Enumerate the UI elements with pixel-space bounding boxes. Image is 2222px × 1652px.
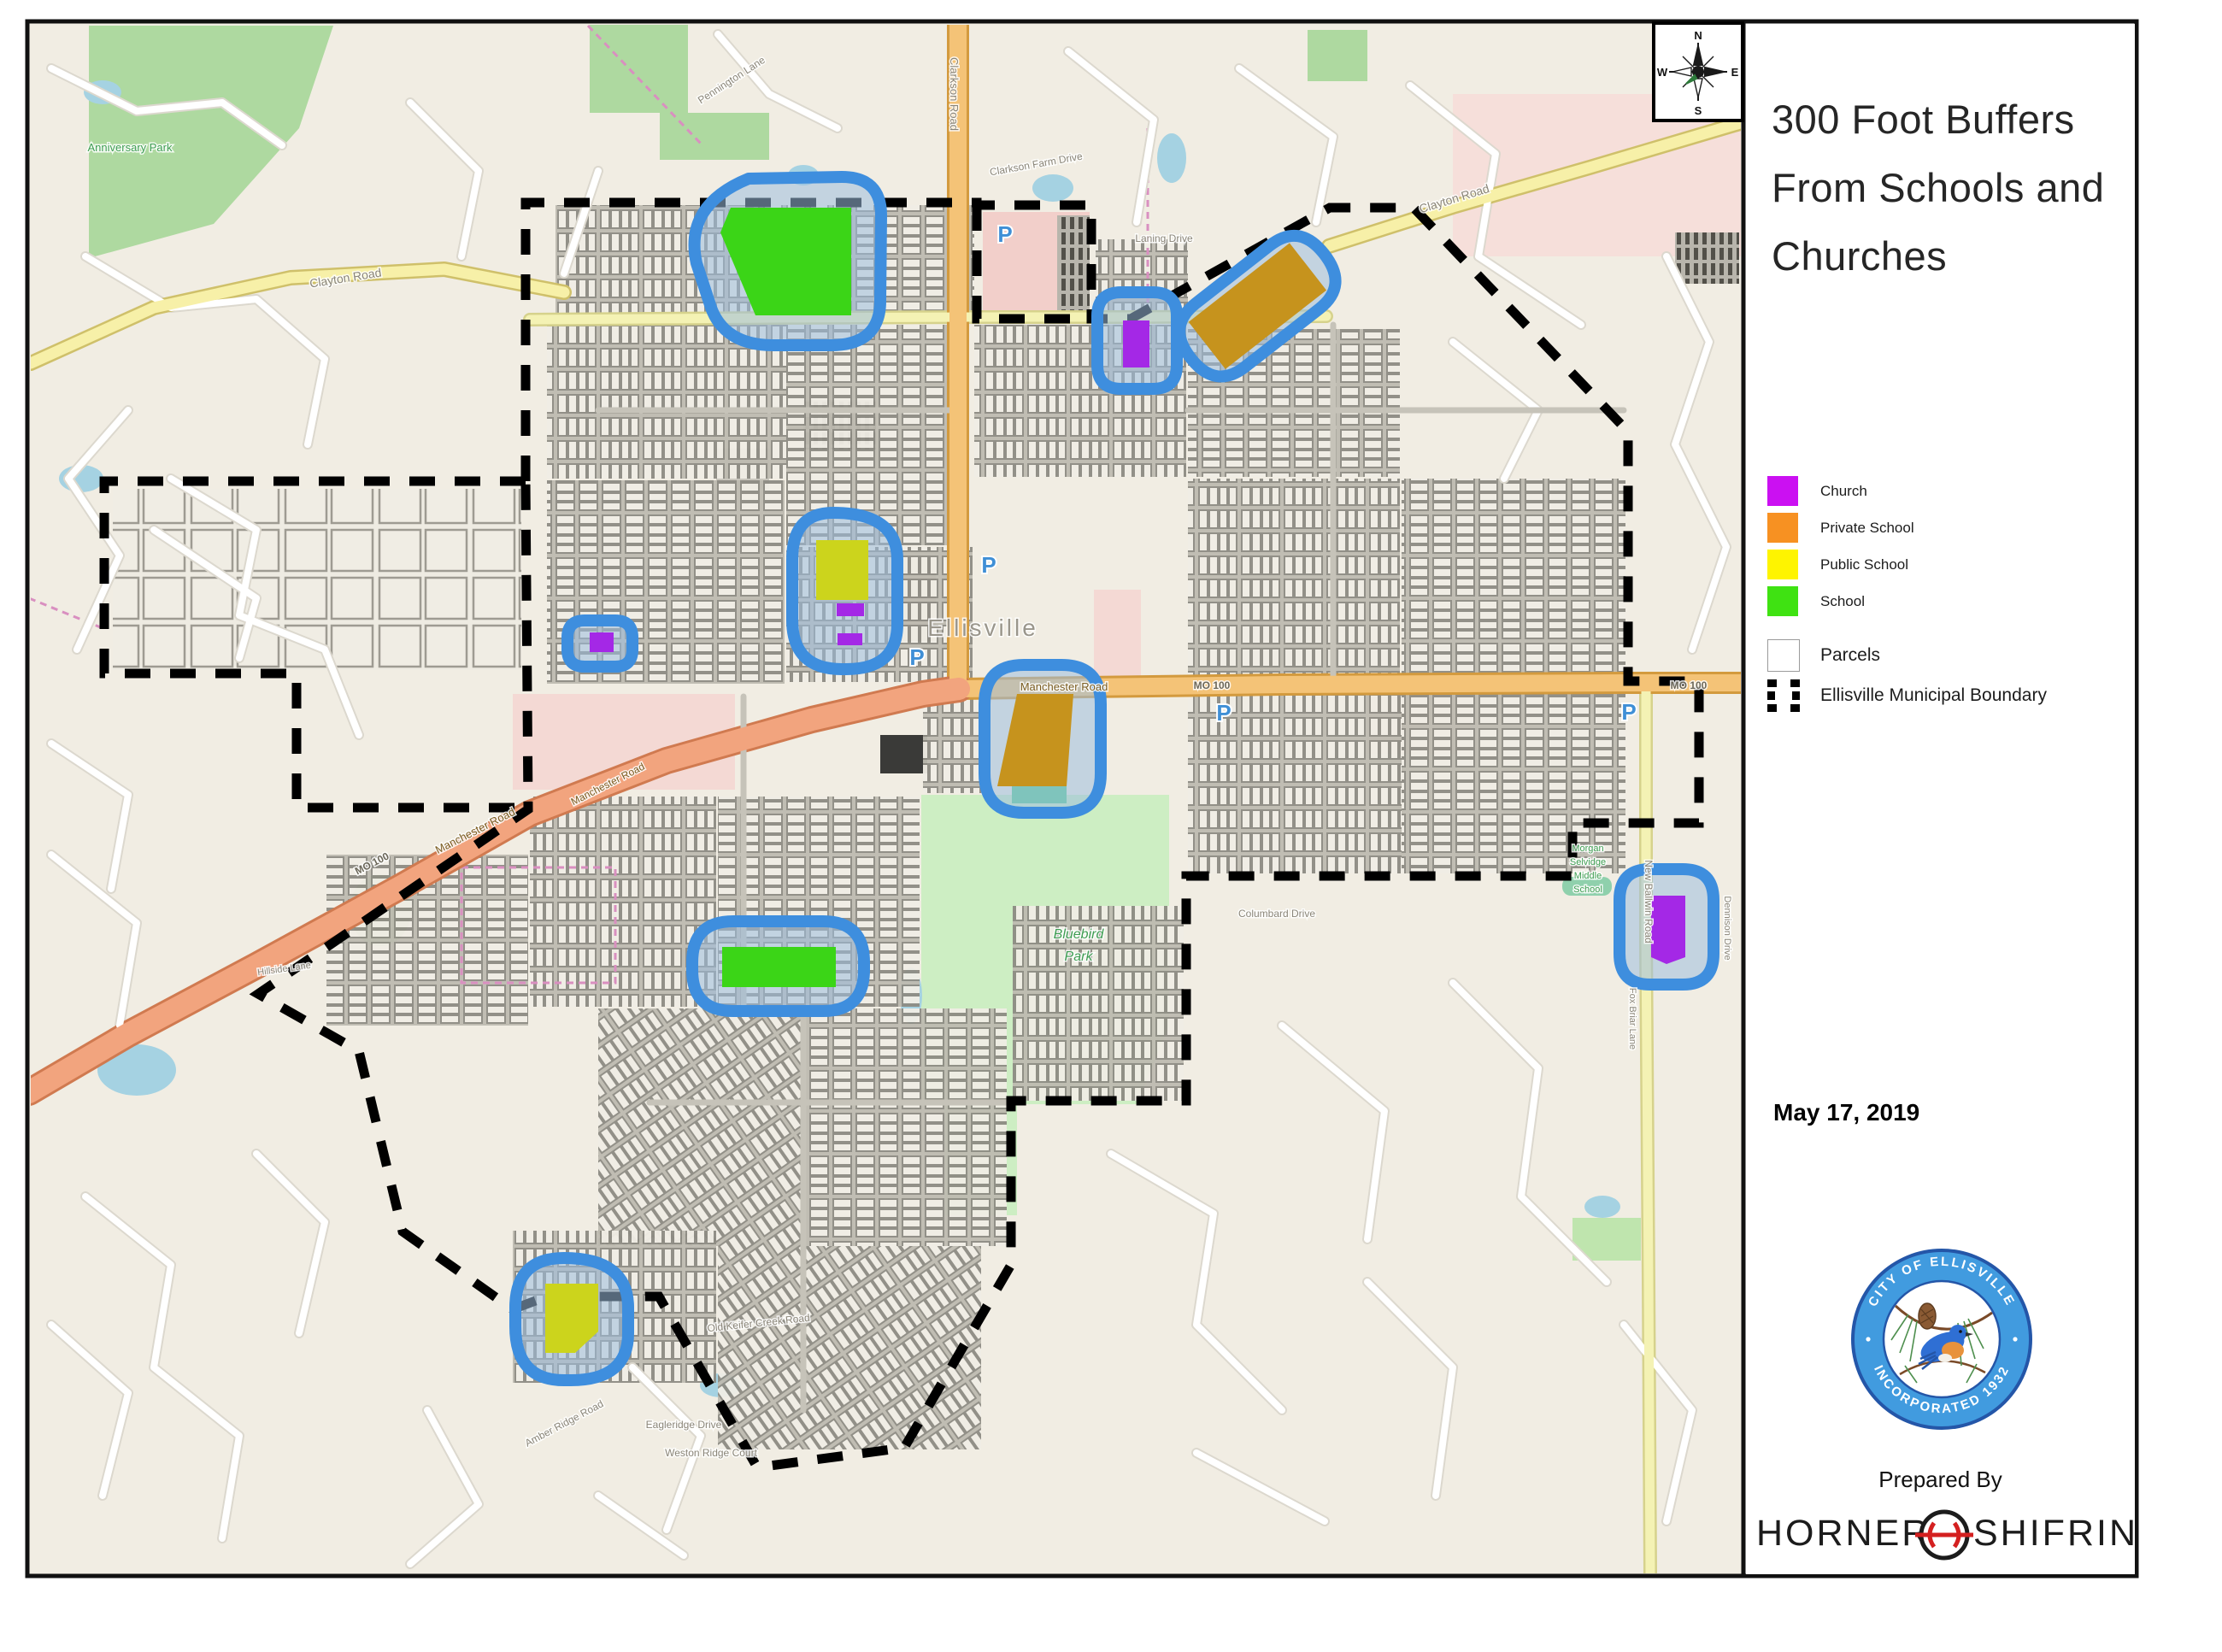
svg-text:P: P: [981, 552, 996, 578]
logo-left: HORNER: [1756, 1513, 1931, 1554]
svg-text:P: P: [997, 221, 1012, 247]
sheet: PPPPPPennington LaneTrowbridge RoadClark…: [0, 0, 2222, 1652]
compass-s: S: [1695, 104, 1702, 117]
svg-text:Anniversary Park: Anniversary Park: [88, 141, 173, 154]
horner-shifrin-logo: HORNER SHIFRIN: [1756, 1504, 2134, 1564]
svg-text:Bluebird: Bluebird: [1054, 927, 1105, 942]
legend-item-private-school: Private School: [1767, 509, 1914, 546]
logo-right: SHIFRIN: [1973, 1513, 2134, 1554]
svg-text:P: P: [909, 644, 924, 670]
svg-text:Laning Drive: Laning Drive: [1135, 232, 1193, 244]
compass-w: W: [1657, 66, 1668, 79]
boundary-swatch: [1767, 679, 1800, 712]
svg-text:Clarkson Road: Clarkson Road: [948, 57, 961, 131]
church-swatch: [1767, 476, 1798, 506]
public-school-swatch: [1767, 550, 1798, 579]
map-date: May 17, 2019: [1773, 1099, 1919, 1126]
svg-text:Selvidge: Selvidge: [1570, 857, 1606, 867]
svg-text:P: P: [1621, 699, 1636, 725]
legend-item-boundary: Ellisville Municipal Boundary: [1767, 675, 2047, 715]
private-school-swatch: [1767, 513, 1798, 543]
map-sheet: { "panel": { "title_lines": ["300 Foot B…: [0, 0, 2222, 1652]
legend-item-church: Church: [1767, 473, 1914, 509]
legend-item-public-school: Public School: [1767, 546, 1914, 583]
legend-layers: Parcels Ellisville Municipal Boundary: [1767, 635, 2047, 715]
info-panel: 300 Foot Buffers From Schools and Church…: [1746, 24, 2135, 1574]
legend-item-parcels: Parcels: [1767, 635, 2047, 675]
svg-text:School: School: [1573, 885, 1602, 895]
prepared-by-label: Prepared By: [1746, 1467, 2135, 1493]
svg-text:Ellisville: Ellisville: [927, 614, 1038, 641]
svg-text:Fox Briar Lane: Fox Briar Lane: [1627, 988, 1637, 1049]
svg-text:Morgan: Morgan: [1572, 844, 1603, 854]
svg-text:MO 100: MO 100: [1194, 679, 1231, 691]
svg-text:Eagleridge Drive: Eagleridge Drive: [646, 1419, 722, 1431]
legend-item-school: School: [1767, 583, 1914, 620]
compass-e: E: [1731, 66, 1739, 79]
svg-text:Weston Ridge Court: Weston Ridge Court: [665, 1447, 757, 1459]
svg-text:MO 100: MO 100: [1671, 679, 1708, 691]
svg-text:Trowbridge Road: Trowbridge Road: [532, 4, 610, 16]
svg-text:Dennison Drive: Dennison Drive: [1722, 896, 1732, 960]
school-swatch: [1767, 586, 1798, 616]
svg-text:Manchester Road: Manchester Road: [1020, 680, 1108, 693]
city-seal: CITY OF ELLISVILLE INCORPORATED 1932: [1849, 1246, 2035, 1432]
compass-rose: N S W E: [1652, 21, 1744, 122]
compass-n: N: [1694, 29, 1702, 42]
svg-text:P: P: [1216, 700, 1231, 726]
svg-text:Park: Park: [1065, 949, 1094, 964]
svg-text:Middle: Middle: [1574, 871, 1602, 881]
parcels-swatch: [1767, 639, 1800, 672]
map-title: 300 Foot Buffers From Schools and Church…: [1772, 85, 2113, 291]
legend: Church Private School Public School Scho…: [1767, 473, 1914, 620]
svg-text:Columbard Drive: Columbard Drive: [1238, 908, 1315, 920]
svg-text:New Ballwin Road: New Ballwin Road: [1643, 860, 1655, 943]
